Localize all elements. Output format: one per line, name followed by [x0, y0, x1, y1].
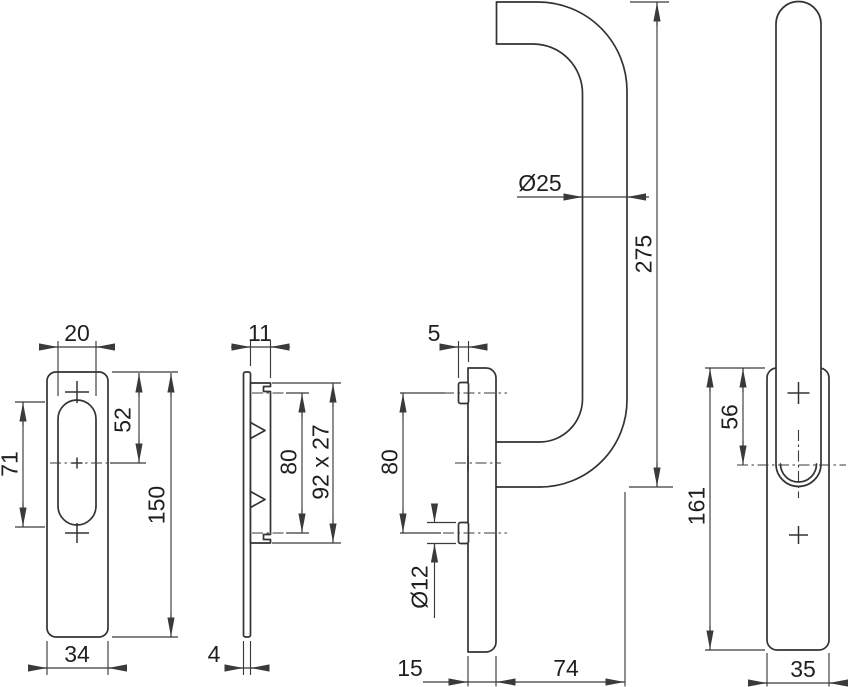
- view-handle-front: 56 161 35: [684, 2, 846, 687]
- dim-plate-width: 34: [30, 641, 125, 675]
- dim-label-plate-depth: 15: [397, 655, 423, 681]
- dim-boss-diameter: Ø12: [407, 504, 456, 618]
- dim-label: 4: [208, 641, 221, 667]
- dim-label: 71: [0, 451, 23, 477]
- view-backplate-side: 11 80 92 x 27 4: [208, 320, 341, 675]
- dim-label: 52: [110, 407, 136, 433]
- dimension-line: [400, 393, 445, 533]
- dim-label: 275: [631, 235, 657, 273]
- handle-tube-outer: [497, 2, 628, 487]
- view-backplate-front: 20 71 52 150 34: [0, 320, 178, 675]
- dim-plate-width: 35: [753, 653, 846, 687]
- dim-label: 35: [790, 656, 816, 682]
- dim-handle-height: 275: [629, 2, 673, 487]
- dim-label: 20: [64, 320, 90, 346]
- dim-label: 150: [144, 486, 170, 524]
- dim-label: 80: [377, 449, 403, 475]
- handle-plate-side-outline: [468, 368, 496, 652]
- technical-drawing-canvas: 20 71 52 150 34: [0, 0, 849, 687]
- dim-label: Ø25: [518, 170, 561, 196]
- dim-depth: 11: [231, 320, 290, 378]
- handle-tube-front: [776, 2, 821, 487]
- handle-dimension-drawing: 20 71 52 150 34: [0, 0, 849, 687]
- dim-label: 34: [64, 641, 90, 667]
- dim-slot-height: 71: [0, 402, 45, 527]
- dimension-line: [423, 492, 625, 687]
- dim-label: 80: [276, 449, 302, 475]
- mounting-boss-profile: [251, 383, 271, 543]
- dim-label: 92 x 27: [308, 424, 334, 499]
- dim-label: Ø12: [407, 565, 433, 608]
- backplate-side-outline: [244, 372, 251, 637]
- dim-hole-spacing: 80: [276, 393, 309, 533]
- dim-label: 161: [684, 487, 710, 525]
- dim-hole-offset: 52: [110, 372, 178, 463]
- view-handle-side: 5 80 Ø12 Ø25 275: [377, 2, 673, 687]
- dim-label: 5: [428, 320, 441, 346]
- dim-label-projection: 74: [553, 655, 579, 681]
- handle-tube-inner: [497, 44, 583, 442]
- dim-label: 56: [717, 404, 743, 430]
- dim-label: 11: [248, 320, 272, 346]
- dim-hole-offset: 56: [705, 368, 765, 465]
- dim-thickness: 4: [208, 641, 269, 675]
- dimension-line: [226, 641, 269, 675]
